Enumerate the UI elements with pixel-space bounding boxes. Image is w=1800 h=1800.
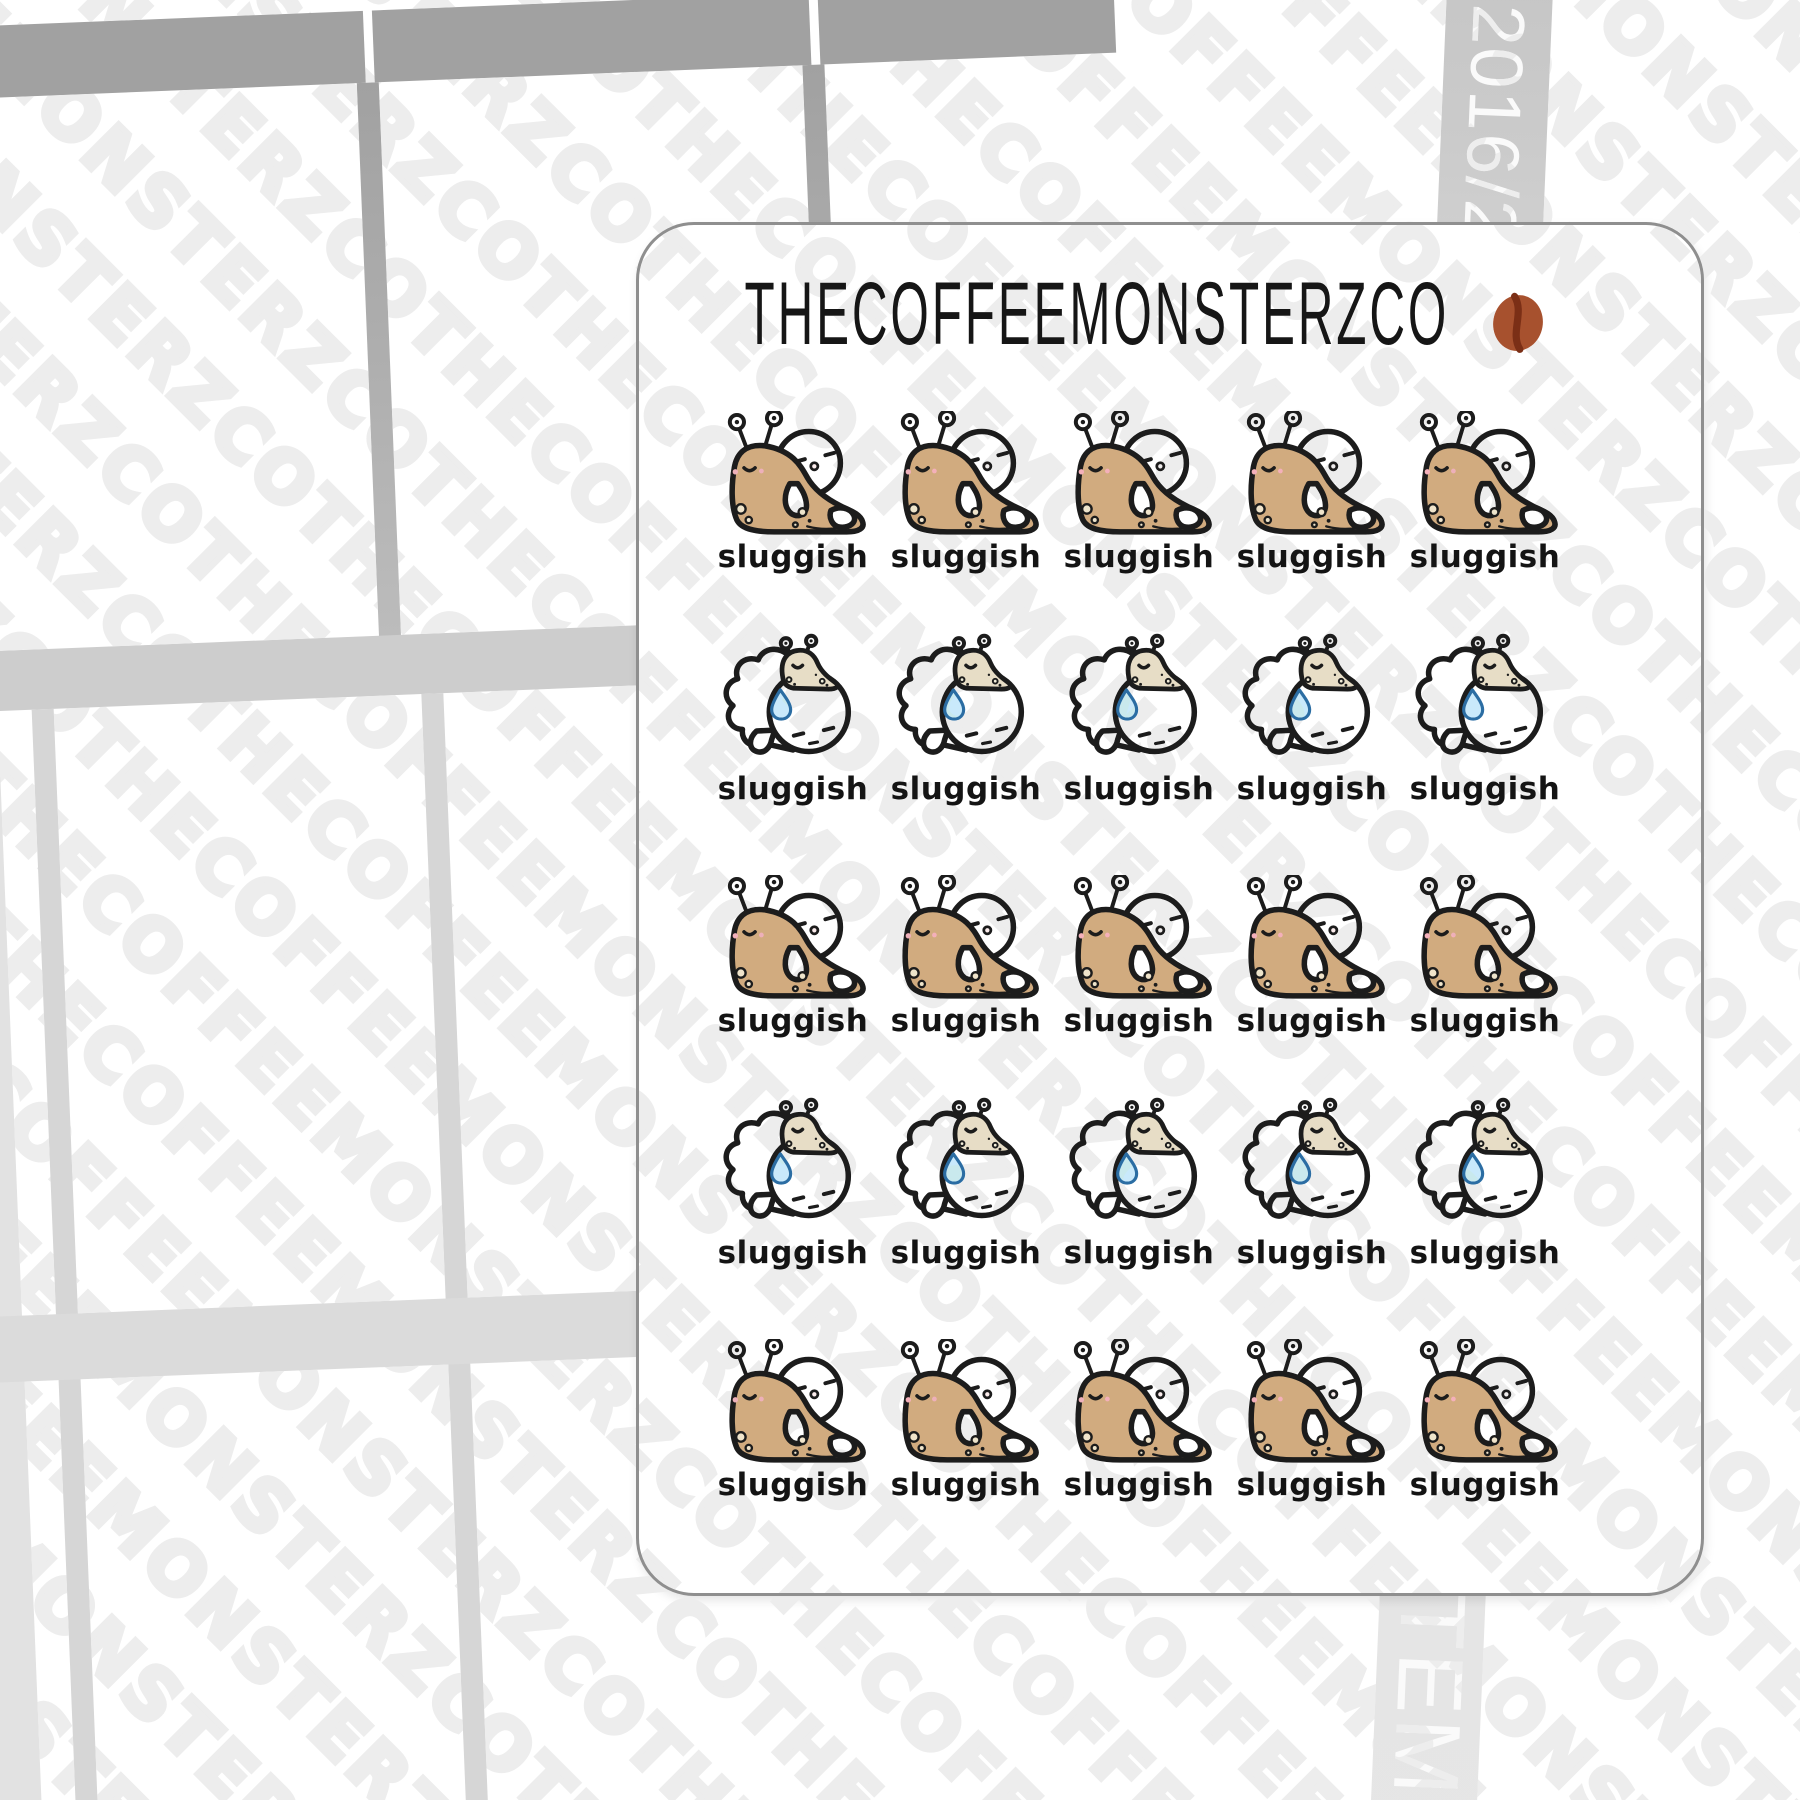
sticker-art-slug-cuddle [1406,1339,1564,1465]
sticker-row: sluggish sluggish [713,1041,1575,1273]
sticker-art-slug-on-head [887,1097,1045,1233]
sticker-slug-cuddle: sluggish [1059,345,1219,577]
sticker-art-slug-cuddle [714,411,872,537]
sticker-slug-on-head: sluggish [1059,1041,1219,1273]
sticker-art-slug-cuddle [714,875,872,1001]
sticker-label: sluggish [1410,769,1561,809]
sticker-art-slug-on-head [1233,1097,1391,1233]
sticker-label: sluggish [1410,1001,1561,1041]
sticker-art-slug-on-head [1233,633,1391,769]
sticker-row: sluggish sluggish [713,1273,1575,1505]
sticker-art-slug-cuddle [887,411,1045,537]
planner-header-bar [0,0,1116,102]
sticker-label: sluggish [891,1233,1042,1273]
sticker-sheet: THECOFFEEMONSTERZCO [636,222,1704,1596]
sticker-art-slug-cuddle [1406,875,1564,1001]
sticker-label: sluggish [718,1001,869,1041]
sticker-slug-cuddle: sluggish [713,809,873,1041]
sticker-art-slug-cuddle [1233,875,1391,1001]
sticker-art-slug-cuddle [1060,411,1218,537]
sticker-slug-on-head: sluggish [1232,577,1392,809]
sticker-label: sluggish [1237,1001,1388,1041]
washi-year-text: 2016/2 [1447,2,1542,244]
sticker-slug-cuddle: sluggish [886,809,1046,1041]
sticker-slug-cuddle: sluggish [713,345,873,577]
sticker-label: sluggish [1064,1233,1215,1273]
sticker-slug-on-head: sluggish [1405,577,1565,809]
sticker-art-slug-cuddle [1406,411,1564,537]
planner-column-divider [357,82,402,660]
sticker-label: sluggish [718,769,869,809]
sticker-art-slug-cuddle [714,1339,872,1465]
sticker-label: sluggish [891,1465,1042,1505]
sticker-art-slug-on-head [1406,1097,1564,1233]
sticker-slug-on-head: sluggish [1059,577,1219,809]
sticker-art-slug-cuddle [1060,875,1218,1001]
sticker-slug-cuddle: sluggish [1059,1273,1219,1505]
sticker-art-slug-on-head [714,1097,872,1233]
sticker-label: sluggish [891,537,1042,577]
sticker-slug-cuddle: sluggish [1405,809,1565,1041]
sticker-label: sluggish [1237,1233,1388,1273]
planner-column-divider [32,709,107,1800]
sticker-label: sluggish [1064,1465,1215,1505]
sticker-slug-cuddle: sluggish [886,345,1046,577]
sticker-grid: sluggish sluggish [713,345,1575,1593]
sticker-label: sluggish [891,1001,1042,1041]
sticker-label: sluggish [1237,1465,1388,1505]
sticker-art-slug-cuddle [1233,411,1391,537]
sticker-label: sluggish [718,1465,869,1505]
sticker-slug-cuddle: sluggish [1232,345,1392,577]
sticker-slug-cuddle: sluggish [1405,345,1565,577]
sticker-slug-on-head: sluggish [1232,1041,1392,1273]
sticker-slug-cuddle: sluggish [1232,1273,1392,1505]
sticker-label: sluggish [718,1233,869,1273]
sticker-row: sluggish sluggish [713,809,1575,1041]
sticker-art-slug-on-head [714,633,872,769]
sticker-label: sluggish [1064,769,1215,809]
sticker-slug-cuddle: sluggish [1405,1273,1565,1505]
sticker-slug-cuddle: sluggish [713,1273,873,1505]
sticker-label: sluggish [1410,1233,1561,1273]
sticker-slug-on-head: sluggish [886,577,1046,809]
sticker-slug-on-head: sluggish [1405,1041,1565,1273]
sticker-label: sluggish [718,537,869,577]
sticker-label: sluggish [891,769,1042,809]
sticker-art-slug-on-head [1060,1097,1218,1233]
sticker-row: sluggish sluggish [713,577,1575,809]
sticker-label: sluggish [1410,1465,1561,1505]
sticker-slug-cuddle: sluggish [1232,809,1392,1041]
sticker-art-slug-cuddle [1233,1339,1391,1465]
sticker-label: sluggish [1237,537,1388,577]
sticker-slug-on-head: sluggish [886,1041,1046,1273]
planner-column-divider [421,693,496,1800]
sticker-art-slug-cuddle [1060,1339,1218,1465]
sticker-label: sluggish [1064,1001,1215,1041]
sticker-art-slug-cuddle [887,875,1045,1001]
sticker-art-slug-on-head [1060,633,1218,769]
sticker-label: sluggish [1064,537,1215,577]
sticker-label: sluggish [1410,537,1561,577]
sticker-art-slug-cuddle [887,1339,1045,1465]
sticker-slug-cuddle: sluggish [886,1273,1046,1505]
sticker-art-slug-on-head [887,633,1045,769]
sticker-row: sluggish sluggish [713,345,1575,577]
sticker-slug-cuddle: sluggish [1059,809,1219,1041]
sticker-art-slug-on-head [1406,633,1564,769]
planner-row-band [0,1288,718,1385]
photo-background: 2016/2 TEMB THECOFFEEMONSTERZCO [0,0,1800,1800]
sticker-slug-on-head: sluggish [713,577,873,809]
washi-month-text: TEMB [1369,1591,1485,1800]
sticker-slug-on-head: sluggish [713,1041,873,1273]
sticker-label: sluggish [1237,769,1388,809]
